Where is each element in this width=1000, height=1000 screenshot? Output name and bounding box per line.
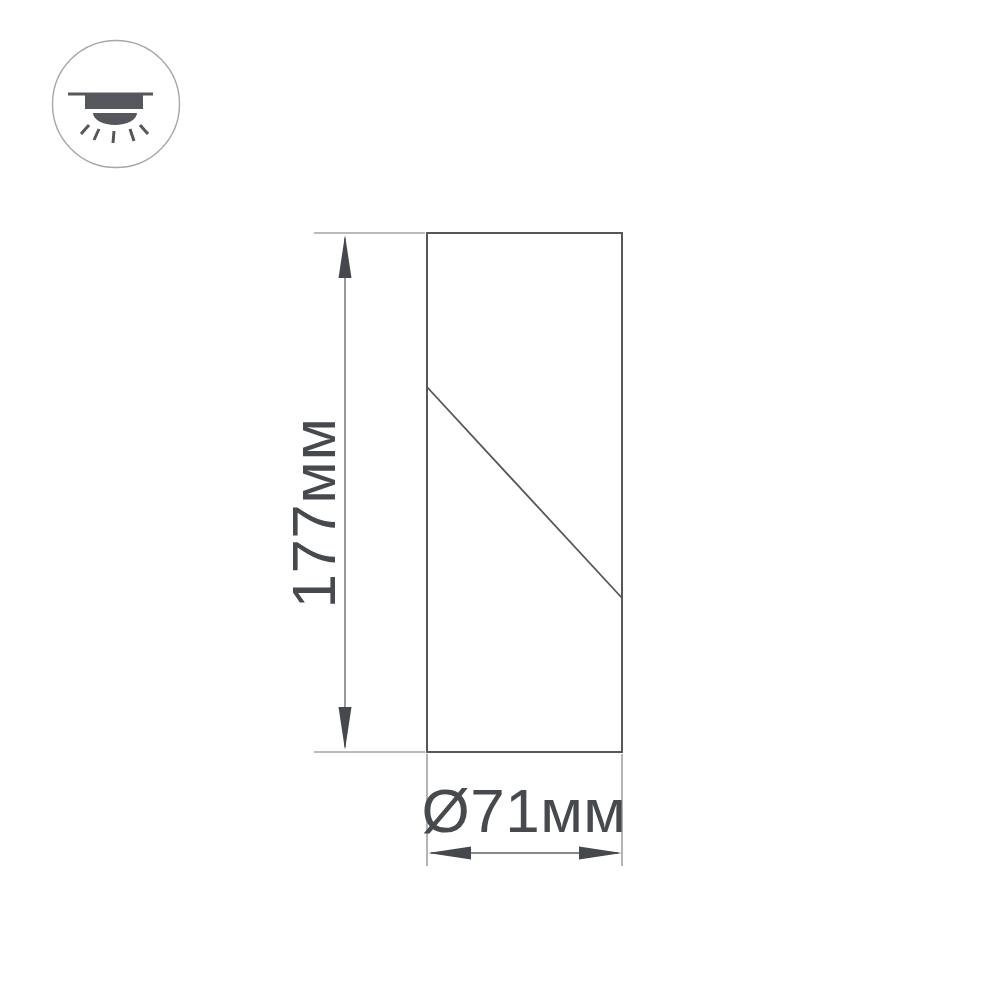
arrow-up-icon (339, 235, 352, 278)
mount-type-icon (53, 41, 180, 168)
arrow-left-icon (428, 847, 471, 860)
diameter-dimension: Ø71мм (422, 754, 627, 866)
product-outline (427, 233, 622, 752)
product-dimension-drawing: 177мм Ø71мм (0, 0, 1000, 1000)
slant-cut-line (427, 387, 622, 598)
fixture-body (85, 94, 143, 109)
height-dimension: 177мм (279, 233, 425, 752)
arrow-down-icon (339, 707, 352, 750)
dimension-diagram-canvas: 177мм Ø71мм (0, 0, 1000, 1000)
arrow-right-icon (579, 847, 622, 860)
ceiling-surface-light-icon (68, 94, 153, 143)
diameter-dimension-label: Ø71мм (422, 776, 627, 845)
fixture-dome (93, 113, 137, 125)
light-rays (81, 125, 148, 143)
height-dimension-label: 177мм (279, 417, 348, 608)
